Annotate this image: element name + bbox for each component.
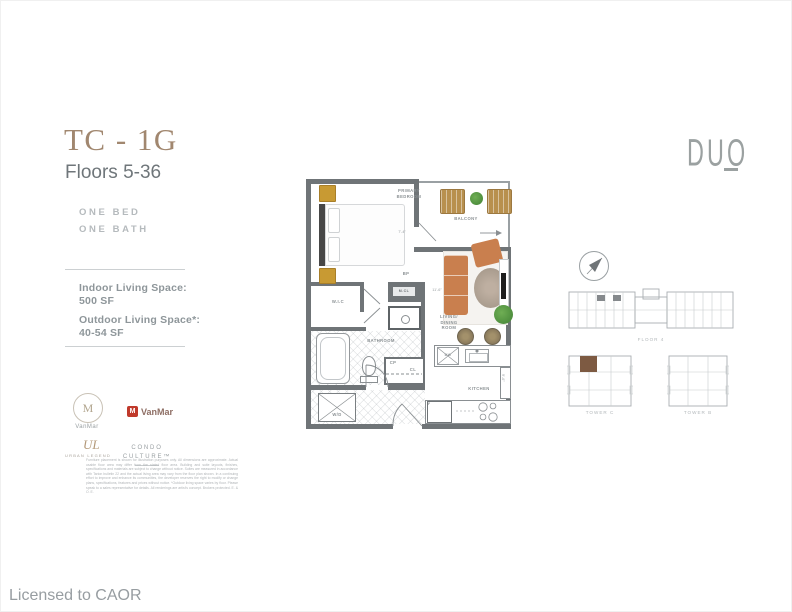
primary-bedroom-label: PRIMARY BEDROOM [384, 188, 434, 199]
keyplan-floor-label: FLOOR 4 [601, 337, 701, 342]
keyplan-tower-b [667, 354, 729, 408]
vanmar-red-name: VanMar [141, 407, 173, 417]
sofa [444, 255, 468, 315]
bed-bath-config: ONE BED ONE BATH [79, 204, 149, 238]
keyplan-floor [567, 287, 735, 333]
bp-label: BP [399, 271, 413, 277]
washer-dryer [318, 393, 356, 422]
legal-disclaimer: Furniture placement is shown for illustr… [86, 458, 238, 495]
pillow [328, 237, 340, 262]
wic-door-leaves [364, 289, 380, 323]
cl-label: CL [407, 367, 419, 373]
kitchen-label: KITCHEN [456, 386, 502, 392]
bathtub [316, 333, 350, 384]
nightstand [319, 268, 336, 284]
bathroom-label: BATHROOM [356, 338, 406, 344]
balcony-door-arrow [480, 230, 502, 236]
floors-subtitle: Floors 5-36 [65, 162, 161, 184]
wall-segment [360, 282, 364, 312]
fridge-label: F [428, 402, 436, 408]
indoor-space-label: Indoor Living Space: [79, 282, 187, 294]
license-note: Licensed to CAOR [9, 587, 142, 605]
kitchen-counter-side [500, 367, 511, 399]
toilet-tank [360, 376, 378, 383]
compass-icon [578, 250, 610, 282]
wall-segment [388, 385, 425, 390]
dimension-living: 11'-6" [425, 288, 449, 292]
balcony-label: BALCONY [442, 216, 490, 222]
cp-label: CP [387, 360, 399, 366]
balcony-plant [470, 192, 483, 205]
floor-core [597, 295, 605, 301]
bathroom-vanity [388, 306, 421, 330]
unit-floorplan: M.CL DW F P [304, 171, 516, 443]
wd-label: W/D [324, 412, 350, 418]
balcony-chair [487, 189, 512, 214]
living-plant [494, 305, 513, 324]
divider-bottom [65, 346, 185, 347]
vanity-basin [401, 315, 410, 324]
bathtub-basin [320, 337, 346, 380]
mcl-label: M.CL [393, 287, 415, 296]
pillow [328, 208, 340, 233]
kitchen-sink [465, 349, 489, 363]
floorplan-sheet: TC - 1G Floors 5-36 ONE BED ONE BATH Ind… [0, 0, 792, 612]
vanmar-circle-logo-icon: M [73, 393, 103, 423]
dimension-bedroom: 7'-4" [392, 230, 412, 234]
bedroom-door-leaf [419, 223, 436, 241]
wall-segment [306, 385, 366, 390]
vanmar-red-logo: M VanMar [127, 406, 173, 417]
wall-segment [306, 424, 393, 429]
wall-segment [421, 331, 425, 357]
vanmar-red-icon: M [127, 406, 138, 417]
keyplan-tower-b-label: TOWER B [667, 410, 729, 415]
nightstand [319, 185, 336, 202]
keyplan-tower-c [567, 354, 633, 408]
sink-basin [469, 353, 488, 362]
wall-segment [306, 179, 418, 184]
living-dining-label: LIVING/ DINING ROOM [429, 314, 469, 331]
divider-top [65, 269, 185, 270]
outdoor-space-label: Outdoor Living Space*: [79, 314, 200, 326]
wall-segment [422, 424, 511, 429]
dimension-kitchen: 9'-6" [501, 374, 505, 382]
balcony-wall-segment [418, 181, 510, 183]
wic-label: W.I.C [318, 299, 358, 305]
wall-segment [414, 179, 419, 227]
balcony-chair [440, 189, 465, 214]
tv [501, 273, 506, 299]
vanmar-circle-logo-name: VanMar [65, 424, 109, 430]
dishwasher-label: DW [437, 353, 459, 359]
wall-segment [306, 327, 366, 331]
urban-legend-monogram-icon: UL [83, 437, 100, 453]
toilet-bowl [362, 356, 376, 376]
keyplan-tower-c-label: TOWER C [567, 410, 633, 415]
unit-code-title: TC - 1G [64, 122, 178, 158]
outdoor-space-value: 40-54 SF [79, 327, 124, 339]
wall-segment [306, 179, 311, 429]
floor-core [613, 295, 621, 301]
counter-stool [484, 328, 501, 345]
indoor-space-value: 500 SF [79, 295, 114, 307]
duo-brand-logo: DUO [687, 132, 748, 176]
duo-logo-underline [724, 168, 738, 171]
highlighted-suite [580, 356, 597, 372]
